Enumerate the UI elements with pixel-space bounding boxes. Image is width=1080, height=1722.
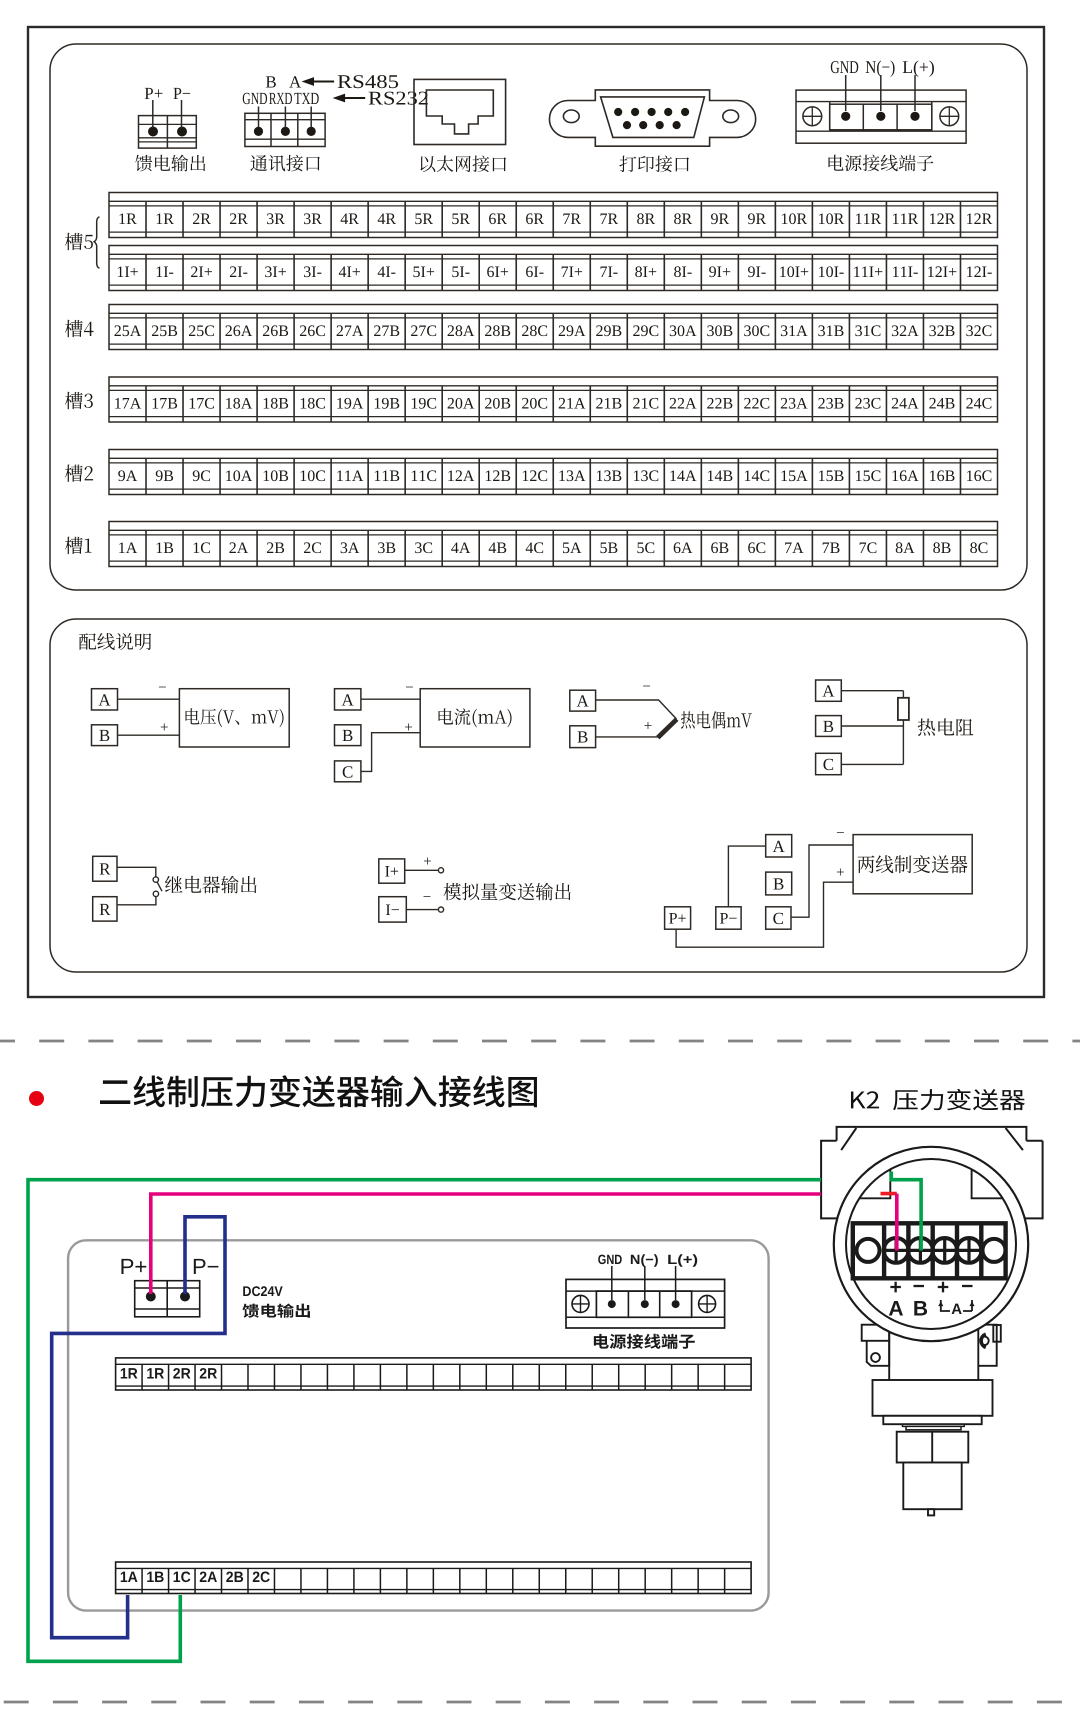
svg-text:2R: 2R: [192, 211, 211, 228]
svg-text:22B: 22B: [707, 396, 734, 413]
svg-text:1A: 1A: [120, 1569, 138, 1586]
svg-text:14A: 14A: [669, 468, 697, 485]
svg-text:1I-: 1I-: [155, 264, 174, 281]
svg-text:GND: GND: [242, 89, 267, 108]
svg-text:11I+: 11I+: [853, 264, 883, 281]
svg-text:12A: 12A: [447, 468, 475, 485]
svg-text:13B: 13B: [595, 468, 622, 485]
svg-text:A: A: [342, 690, 355, 709]
svg-text:23A: 23A: [780, 396, 808, 413]
svg-text:5I-: 5I-: [451, 264, 470, 281]
svg-text:N(−): N(−): [865, 57, 895, 77]
svg-text:6R: 6R: [525, 211, 544, 228]
svg-text:27B: 27B: [373, 323, 400, 340]
svg-text:26A: 26A: [225, 323, 253, 340]
svg-text:12R: 12R: [929, 211, 956, 228]
svg-text:15B: 15B: [818, 468, 845, 485]
svg-text:2B: 2B: [226, 1569, 244, 1586]
svg-text:6I-: 6I-: [525, 264, 544, 281]
svg-text:17B: 17B: [151, 396, 178, 413]
svg-text:29B: 29B: [595, 323, 622, 340]
svg-text:6C: 6C: [748, 540, 767, 557]
svg-text:5B: 5B: [599, 540, 618, 557]
svg-text:4R: 4R: [377, 211, 396, 228]
svg-text:7I-: 7I-: [599, 264, 618, 281]
svg-text:A: A: [773, 837, 786, 856]
svg-text:27A: 27A: [336, 323, 364, 340]
svg-text:2R: 2R: [173, 1366, 191, 1383]
svg-text:11B: 11B: [373, 468, 400, 485]
svg-text:18B: 18B: [262, 396, 289, 413]
svg-text:2I+: 2I+: [190, 264, 212, 281]
svg-text:1C: 1C: [173, 1569, 191, 1586]
svg-text:4I-: 4I-: [377, 264, 396, 281]
svg-text:−: −: [642, 679, 650, 695]
svg-text:15A: 15A: [780, 468, 808, 485]
svg-text:11R: 11R: [892, 211, 919, 228]
svg-text:6R: 6R: [488, 211, 507, 228]
svg-text:+: +: [937, 1276, 949, 1299]
svg-text:8I-: 8I-: [673, 264, 692, 281]
svg-text:A: A: [888, 1298, 903, 1321]
svg-text:2R: 2R: [229, 211, 248, 228]
svg-text:8A: 8A: [895, 540, 915, 557]
svg-text:3I-: 3I-: [303, 264, 322, 281]
svg-text:2C: 2C: [303, 540, 322, 557]
svg-text:9I-: 9I-: [748, 264, 767, 281]
svg-text:9C: 9C: [192, 468, 211, 485]
svg-text:15C: 15C: [855, 468, 882, 485]
svg-text:3R: 3R: [266, 211, 285, 228]
svg-text:29A: 29A: [558, 323, 586, 340]
svg-text:5R: 5R: [414, 211, 433, 228]
svg-text:6I+: 6I+: [487, 264, 509, 281]
svg-text:16B: 16B: [929, 468, 956, 485]
svg-text:2A: 2A: [199, 1569, 217, 1586]
svg-text:2A: 2A: [229, 540, 249, 557]
svg-text:5R: 5R: [451, 211, 470, 228]
svg-text:−: −: [913, 1275, 925, 1298]
svg-text:10R: 10R: [818, 211, 845, 228]
svg-text:24C: 24C: [966, 396, 993, 413]
svg-text:10I-: 10I-: [818, 264, 845, 281]
svg-text:8C: 8C: [970, 540, 989, 557]
svg-text:P−: P−: [192, 1254, 220, 1279]
svg-text:GND: GND: [598, 1252, 623, 1267]
svg-text:R: R: [99, 860, 111, 879]
svg-text:10R: 10R: [781, 211, 808, 228]
svg-text:B: B: [823, 717, 834, 736]
svg-text:9I+: 9I+: [709, 264, 731, 281]
svg-text:7R: 7R: [599, 211, 618, 228]
svg-text:12R: 12R: [966, 211, 993, 228]
svg-text:27C: 27C: [410, 323, 437, 340]
svg-text:12I+: 12I+: [927, 264, 957, 281]
svg-text:11I-: 11I-: [892, 264, 919, 281]
svg-text:24B: 24B: [929, 396, 956, 413]
svg-text:4C: 4C: [525, 540, 544, 557]
svg-text:18C: 18C: [299, 396, 326, 413]
svg-text:26C: 26C: [299, 323, 326, 340]
svg-text:26B: 26B: [262, 323, 289, 340]
svg-text:1R: 1R: [118, 211, 137, 228]
svg-text:4A: 4A: [451, 540, 471, 557]
svg-text:8B: 8B: [933, 540, 952, 557]
svg-text:R: R: [99, 900, 111, 919]
svg-text:20C: 20C: [521, 396, 548, 413]
svg-text:−: −: [423, 890, 431, 906]
svg-text:P−: P−: [719, 911, 737, 928]
svg-text:7R: 7R: [562, 211, 581, 228]
svg-text:TXD: TXD: [294, 89, 319, 108]
svg-text:19B: 19B: [373, 396, 400, 413]
svg-text:25B: 25B: [151, 323, 178, 340]
svg-text:P+: P+: [669, 911, 687, 928]
svg-text:B: B: [99, 726, 110, 745]
svg-text:25C: 25C: [188, 323, 215, 340]
svg-text:7B: 7B: [822, 540, 841, 557]
svg-text:16C: 16C: [966, 468, 993, 485]
svg-text:5A: 5A: [562, 540, 582, 557]
svg-text:+: +: [836, 865, 844, 881]
svg-text:21A: 21A: [558, 396, 586, 413]
svg-text:10I+: 10I+: [779, 264, 809, 281]
svg-text:16A: 16A: [891, 468, 919, 485]
svg-text:1B: 1B: [146, 1569, 164, 1586]
svg-text:1B: 1B: [155, 540, 174, 557]
svg-text:21C: 21C: [632, 396, 659, 413]
svg-text:2I-: 2I-: [229, 264, 248, 281]
svg-text:DC24V: DC24V: [242, 1283, 283, 1299]
svg-text:P−: P−: [173, 84, 191, 103]
svg-text:RXD: RXD: [269, 89, 293, 108]
svg-text:+: +: [423, 854, 431, 870]
svg-text:28C: 28C: [521, 323, 548, 340]
svg-text:5C: 5C: [636, 540, 655, 557]
svg-text:8R: 8R: [673, 211, 692, 228]
svg-text:10C: 10C: [299, 468, 326, 485]
svg-text:3R: 3R: [303, 211, 322, 228]
svg-text:P+: P+: [120, 1254, 148, 1279]
svg-text:1C: 1C: [192, 540, 211, 557]
svg-text:8R: 8R: [636, 211, 655, 228]
svg-text:18A: 18A: [225, 396, 253, 413]
svg-text:29C: 29C: [632, 323, 659, 340]
svg-text:3A: 3A: [340, 540, 360, 557]
svg-text:3B: 3B: [377, 540, 396, 557]
svg-text:A: A: [951, 1301, 962, 1318]
svg-text:−: −: [158, 680, 166, 696]
svg-text:C: C: [773, 909, 784, 928]
svg-text:1I+: 1I+: [116, 264, 138, 281]
svg-text:1R: 1R: [155, 211, 174, 228]
svg-text:17C: 17C: [188, 396, 215, 413]
svg-text:22A: 22A: [669, 396, 697, 413]
svg-text:1R: 1R: [120, 1366, 138, 1383]
svg-text:C: C: [823, 755, 834, 774]
svg-text:A: A: [822, 682, 835, 701]
svg-text:A: A: [289, 73, 302, 92]
svg-text:RS232: RS232: [368, 89, 429, 110]
svg-text:28B: 28B: [484, 323, 511, 340]
svg-text:24A: 24A: [891, 396, 919, 413]
svg-text:13C: 13C: [632, 468, 659, 485]
svg-text:4R: 4R: [340, 211, 359, 228]
svg-text:B: B: [577, 728, 588, 747]
svg-text:L(+): L(+): [667, 1252, 698, 1267]
svg-text:31C: 31C: [855, 323, 882, 340]
svg-text:4I+: 4I+: [338, 264, 360, 281]
svg-text:22C: 22C: [744, 396, 771, 413]
svg-text:2R: 2R: [199, 1366, 217, 1383]
svg-text:7C: 7C: [859, 540, 878, 557]
svg-text:9A: 9A: [118, 468, 138, 485]
svg-text:19C: 19C: [410, 396, 437, 413]
svg-text:9R: 9R: [748, 211, 767, 228]
svg-text:11R: 11R: [855, 211, 882, 228]
svg-text:8I+: 8I+: [635, 264, 657, 281]
svg-text:9B: 9B: [155, 468, 174, 485]
svg-text:A: A: [98, 690, 111, 709]
svg-text:+: +: [644, 719, 652, 735]
svg-text:10A: 10A: [225, 468, 253, 485]
svg-text:L(+): L(+): [902, 57, 935, 77]
svg-text:10B: 10B: [262, 468, 289, 485]
svg-text:5I+: 5I+: [412, 264, 434, 281]
svg-text:9R: 9R: [711, 211, 730, 228]
svg-text:+: +: [889, 1276, 901, 1299]
svg-text:13A: 13A: [558, 468, 586, 485]
svg-text:1R: 1R: [146, 1366, 164, 1383]
svg-text:32A: 32A: [891, 323, 919, 340]
svg-text:21B: 21B: [595, 396, 622, 413]
svg-text:30A: 30A: [669, 323, 697, 340]
svg-text:B: B: [342, 726, 353, 745]
svg-text:7I+: 7I+: [561, 264, 583, 281]
svg-text:2C: 2C: [252, 1569, 270, 1586]
svg-text:14B: 14B: [707, 468, 734, 485]
svg-text:19A: 19A: [336, 396, 364, 413]
svg-text:32C: 32C: [966, 323, 993, 340]
svg-text:P+: P+: [144, 84, 163, 103]
svg-text:GND: GND: [830, 57, 859, 77]
svg-text:−: −: [405, 680, 413, 696]
svg-text:12C: 12C: [521, 468, 548, 485]
svg-text:20B: 20B: [484, 396, 511, 413]
svg-text:6B: 6B: [711, 540, 730, 557]
svg-text:I−: I−: [385, 902, 399, 919]
svg-text:30B: 30B: [707, 323, 734, 340]
svg-text:17A: 17A: [114, 396, 142, 413]
svg-text:12B: 12B: [484, 468, 511, 485]
svg-text:B: B: [913, 1298, 928, 1321]
svg-text:23C: 23C: [855, 396, 882, 413]
svg-text:−: −: [961, 1275, 973, 1298]
svg-text:12I-: 12I-: [966, 264, 993, 281]
svg-text:4B: 4B: [488, 540, 507, 557]
svg-text:11A: 11A: [336, 468, 364, 485]
svg-text:C: C: [342, 762, 353, 781]
svg-text:−: −: [836, 826, 844, 842]
svg-text:3C: 3C: [414, 540, 433, 557]
svg-text:20A: 20A: [447, 396, 475, 413]
svg-text:31A: 31A: [780, 323, 808, 340]
svg-text:3I+: 3I+: [264, 264, 286, 281]
svg-text:+: +: [404, 720, 412, 736]
svg-text:A: A: [577, 692, 590, 711]
svg-text:14C: 14C: [744, 468, 771, 485]
svg-text:31B: 31B: [818, 323, 845, 340]
svg-text:N(−): N(−): [630, 1252, 659, 1267]
svg-text:B: B: [265, 73, 276, 92]
svg-text:25A: 25A: [114, 323, 142, 340]
svg-text:6A: 6A: [673, 540, 693, 557]
svg-text:B: B: [773, 874, 784, 893]
svg-text:32B: 32B: [929, 323, 956, 340]
svg-text:2B: 2B: [266, 540, 285, 557]
svg-text:11C: 11C: [410, 468, 437, 485]
svg-text:23B: 23B: [818, 396, 845, 413]
svg-text:+: +: [160, 720, 168, 736]
svg-text:28A: 28A: [447, 323, 475, 340]
svg-text:7A: 7A: [784, 540, 804, 557]
svg-text:I+: I+: [385, 864, 399, 881]
svg-text:1A: 1A: [118, 540, 138, 557]
svg-text:30C: 30C: [744, 323, 771, 340]
